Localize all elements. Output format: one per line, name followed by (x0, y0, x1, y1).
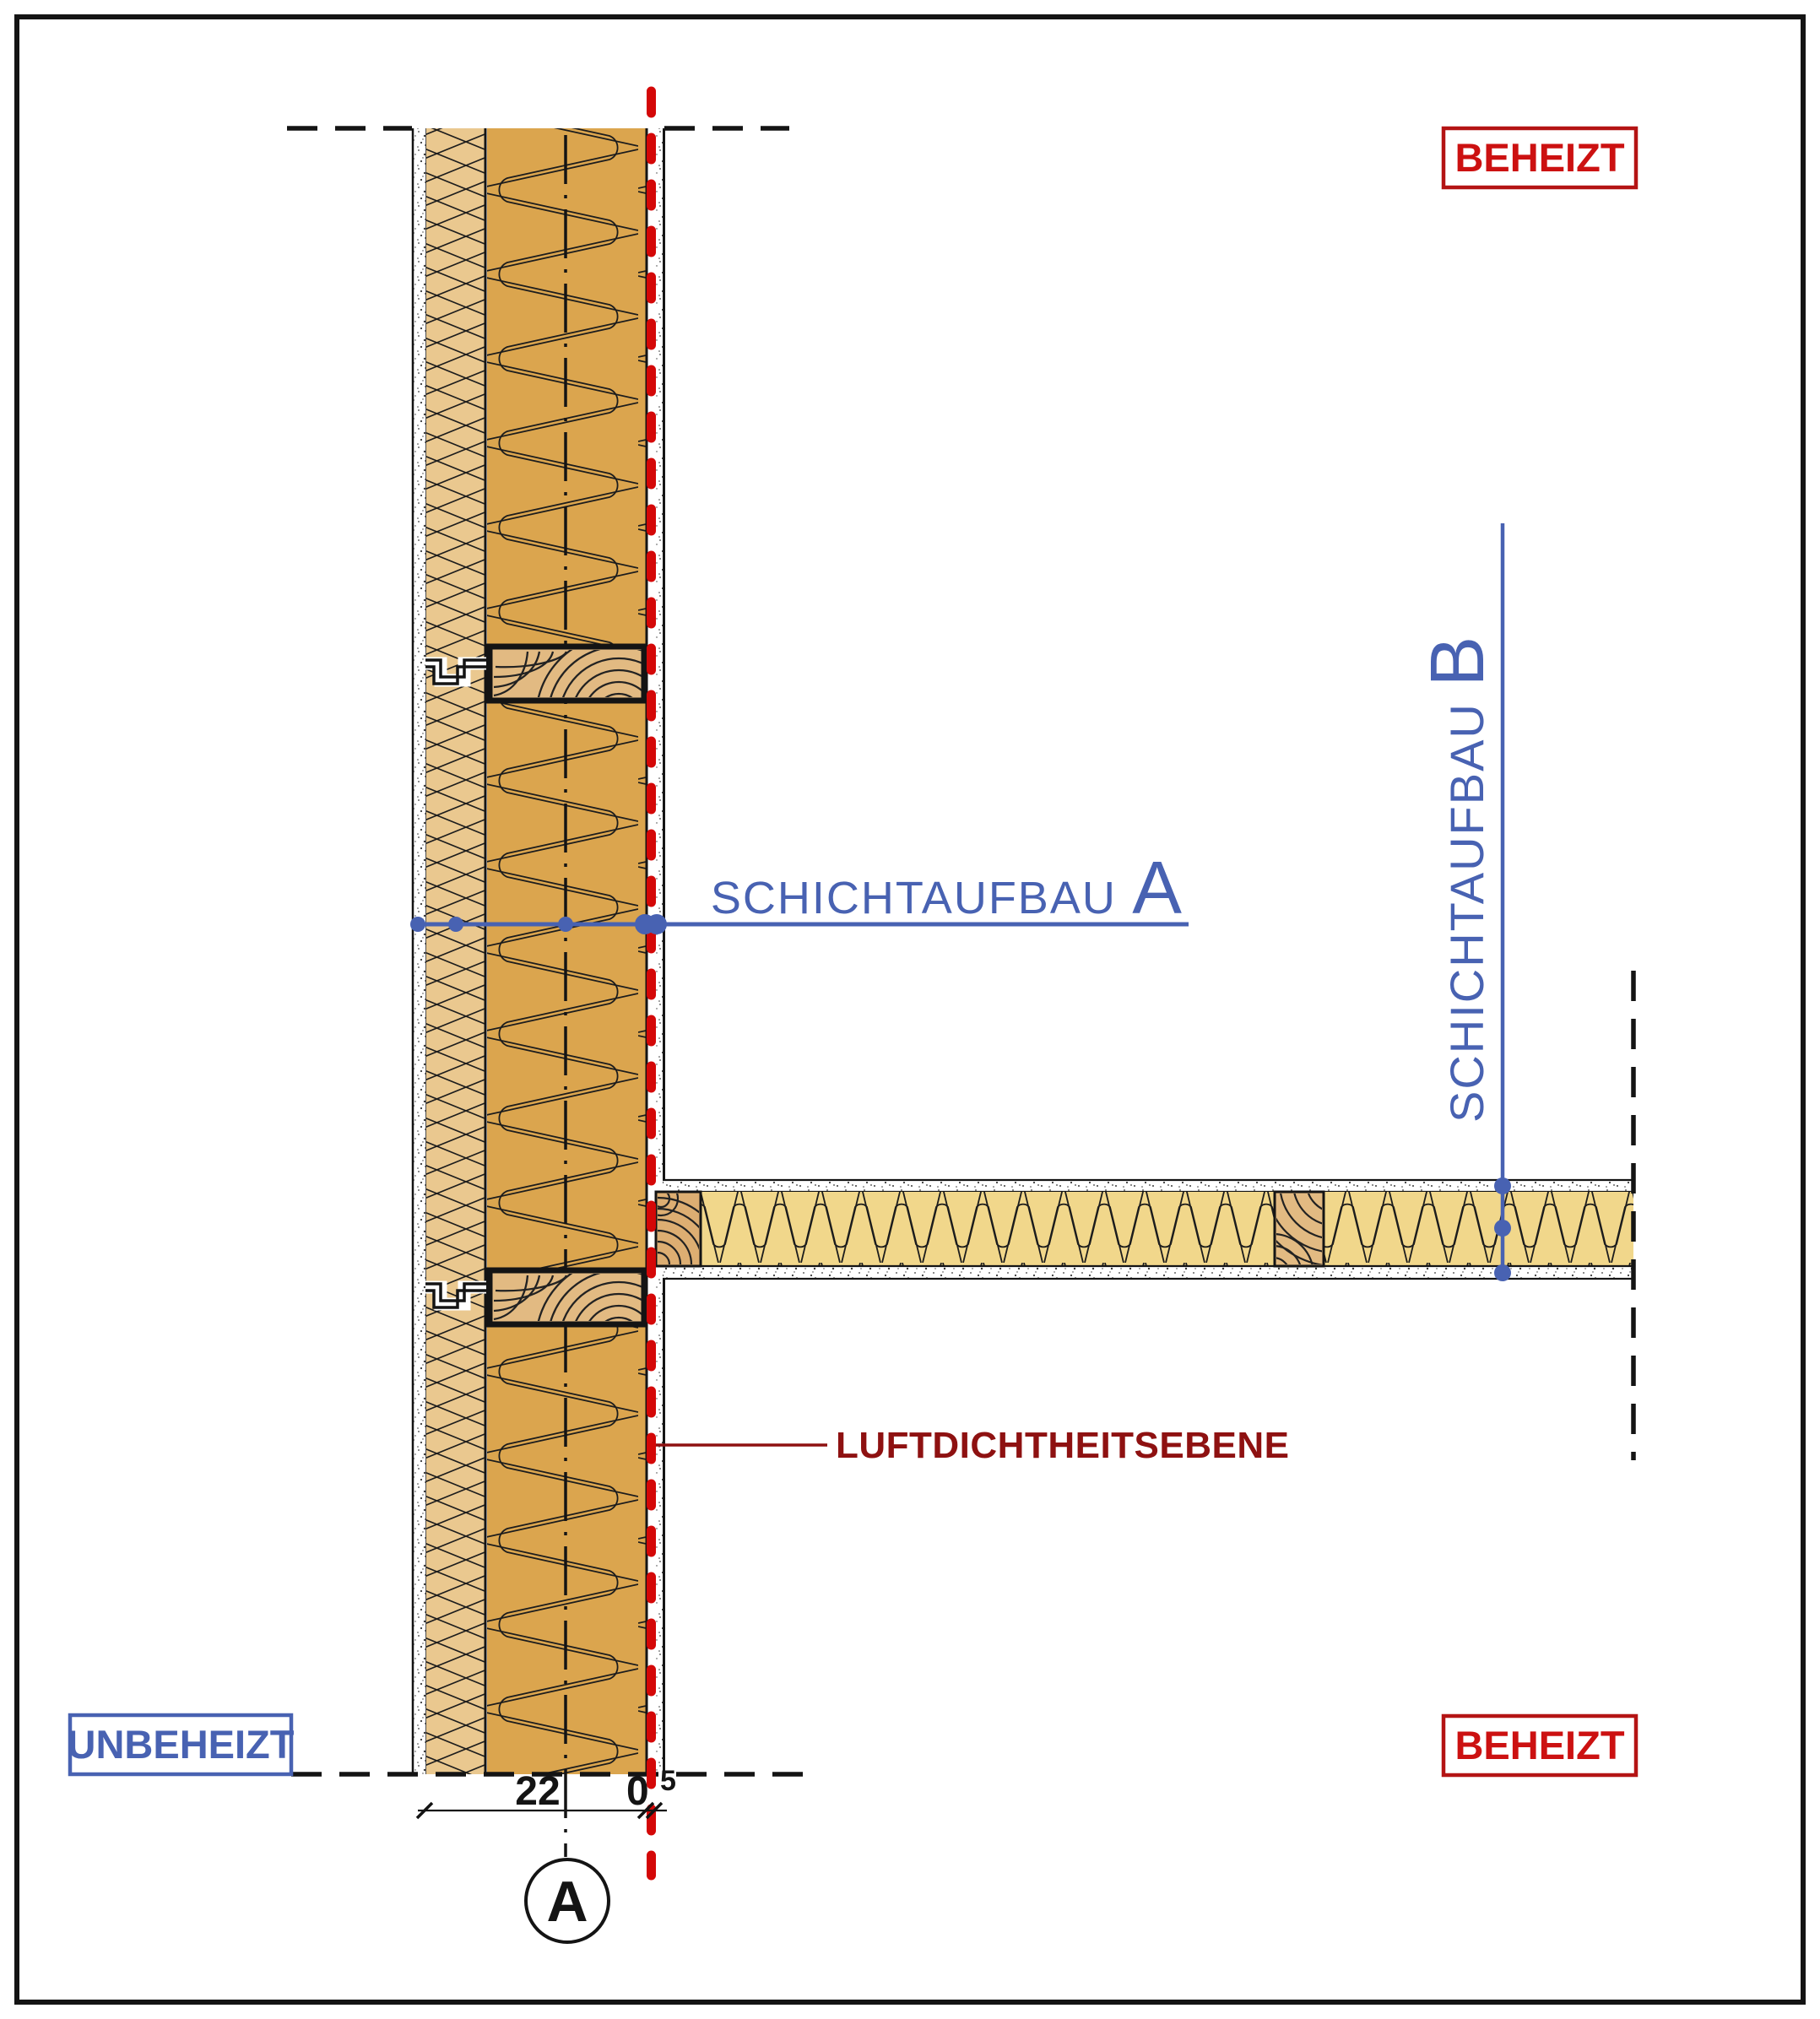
dimension-value-05: 0 5 (626, 1765, 676, 1814)
zone-beheizt-bottom: BEHEIZT (1444, 1716, 1636, 1775)
zone-unbeheizt: UNBEHEIZT (68, 1715, 295, 1774)
wall-assembly (412, 128, 664, 1774)
layer-structure-a-label: SCHICHTAUFBAU A (711, 846, 1182, 929)
zone-label: BEHEIZT (1454, 1723, 1624, 1767)
section-marker-letter: A (546, 1870, 588, 1934)
layer-structure-b-annotation: SCHICHTAUFBAU B (1416, 523, 1511, 1281)
section-marker: A (526, 1859, 609, 1942)
floor-top-screed-layer (663, 1180, 1633, 1192)
wall-interior-plaster-upper (656, 128, 664, 1180)
zone-beheizt-top: BEHEIZT (1444, 128, 1636, 187)
wall-fibreboard-hatch (426, 128, 485, 1774)
zone-label: BEHEIZT (1454, 135, 1624, 180)
sheet-border (17, 17, 1803, 2002)
floor-insulation-hatch (663, 1192, 1633, 1266)
floor-assembly (591, 1101, 1633, 1331)
wall-exterior-plaster-layer (412, 128, 426, 1774)
airtightness-label: LUFTDICHTHEITSEBENE (836, 1425, 1290, 1466)
layer-structure-b-label: SCHICHTAUFBAU B (1416, 636, 1500, 1123)
construction-detail-drawing: SCHICHTAUFBAU A SCHICHTAUFBAU B LUFTDICH… (0, 0, 1820, 2019)
zone-label: UNBEHEIZT (68, 1722, 295, 1767)
wall-interior-plaster-lower (656, 1279, 664, 1774)
floor-bottom-plaster-layer (663, 1266, 1633, 1279)
airtightness-annotation: LUFTDICHTHEITSEBENE (656, 1425, 1290, 1466)
detail-drawing-canvas: SCHICHTAUFBAU A SCHICHTAUFBAU B LUFTDICH… (0, 0, 1820, 2019)
dimension-value-22: 22 (515, 1769, 560, 1814)
